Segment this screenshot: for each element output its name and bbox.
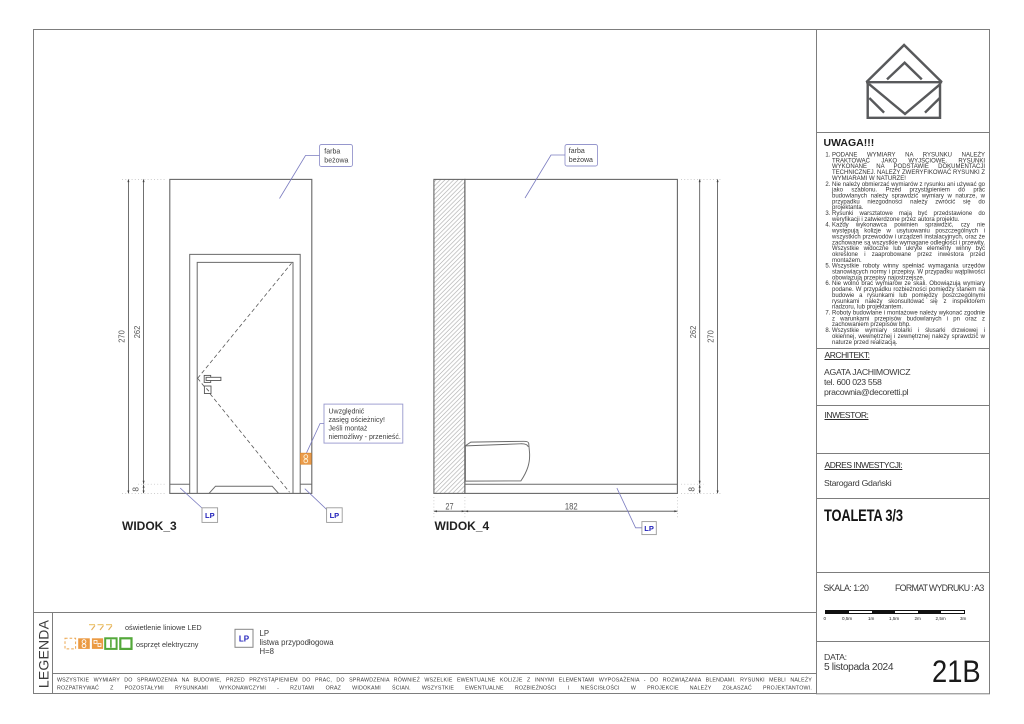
svg-text:8: 8 [131, 487, 141, 492]
svg-text:zasięg ościeżnicy!: zasięg ościeżnicy! [329, 417, 385, 424]
svg-text:LP: LP [330, 511, 340, 520]
svg-text:LP: LP [239, 634, 250, 643]
svg-text:270: 270 [117, 330, 127, 343]
svg-text:Uwzględnić: Uwzględnić [329, 408, 365, 415]
svg-text:8: 8 [687, 487, 697, 492]
svg-text:beżowa: beżowa [569, 157, 593, 164]
svg-text:27: 27 [445, 501, 453, 511]
svg-text:niemożliwy - przenieść.: niemożliwy - przenieść. [329, 434, 401, 441]
svg-text:LP: LP [205, 511, 215, 520]
svg-text:LP: LP [644, 524, 654, 533]
svg-text:farba: farba [569, 148, 585, 155]
svg-text:farba: farba [324, 149, 340, 156]
svg-text:262: 262 [132, 325, 142, 338]
svg-text:Jeśli montaż: Jeśli montaż [329, 425, 368, 432]
svg-text:beżowa: beżowa [324, 158, 348, 165]
svg-text:270: 270 [705, 330, 715, 343]
svg-text:182: 182 [565, 501, 578, 511]
svg-text:262: 262 [688, 325, 698, 338]
